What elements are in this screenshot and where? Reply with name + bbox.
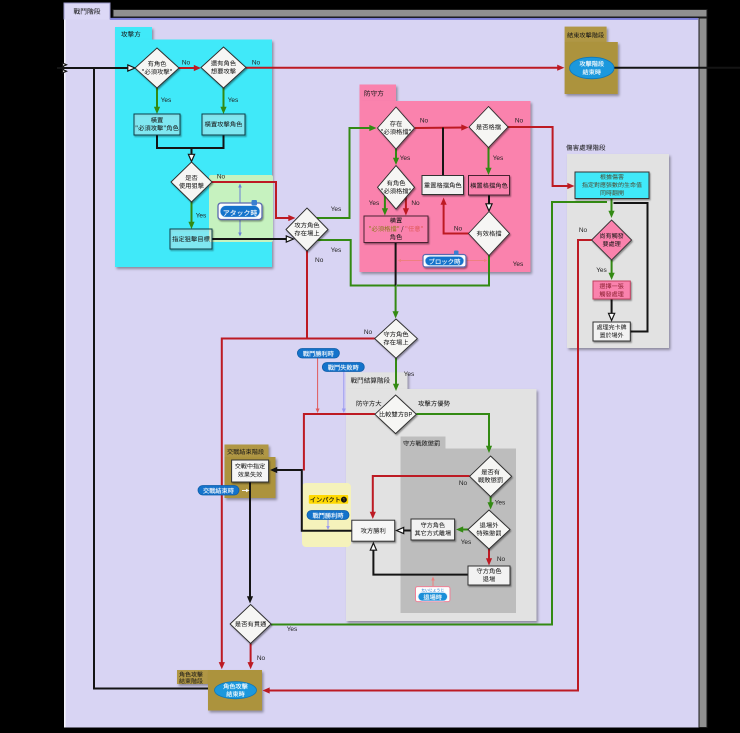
svg-text:Yes: Yes xyxy=(513,261,524,268)
svg-text:No: No xyxy=(497,556,506,563)
svg-text:Yes: Yes xyxy=(493,155,504,162)
svg-text:No: No xyxy=(411,200,420,207)
svg-text:No: No xyxy=(217,174,226,181)
svg-text:Yes: Yes xyxy=(400,155,411,162)
svg-text:No: No xyxy=(182,60,191,67)
svg-text:No: No xyxy=(454,226,463,233)
svg-text:Yes: Yes xyxy=(228,97,239,104)
svg-text:Yes: Yes xyxy=(196,213,207,220)
svg-text:No: No xyxy=(515,118,524,125)
svg-text:Yes: Yes xyxy=(495,500,506,507)
svg-text:No: No xyxy=(579,227,588,234)
svg-text:No: No xyxy=(315,257,324,264)
svg-text:Yes: Yes xyxy=(331,247,342,254)
svg-text:Yes: Yes xyxy=(287,626,298,633)
svg-text:No: No xyxy=(364,329,373,336)
svg-text:No: No xyxy=(420,118,429,125)
svg-text:Yes: Yes xyxy=(404,371,415,378)
svg-text:Yes: Yes xyxy=(461,539,472,546)
svg-text:Yes: Yes xyxy=(596,267,607,274)
svg-text:No: No xyxy=(252,60,261,67)
svg-text:No: No xyxy=(459,480,468,487)
svg-text:No: No xyxy=(257,655,266,662)
svg-text:Yes: Yes xyxy=(331,206,342,213)
svg-text:Yes: Yes xyxy=(369,200,380,207)
svg-text:Yes: Yes xyxy=(161,97,172,104)
